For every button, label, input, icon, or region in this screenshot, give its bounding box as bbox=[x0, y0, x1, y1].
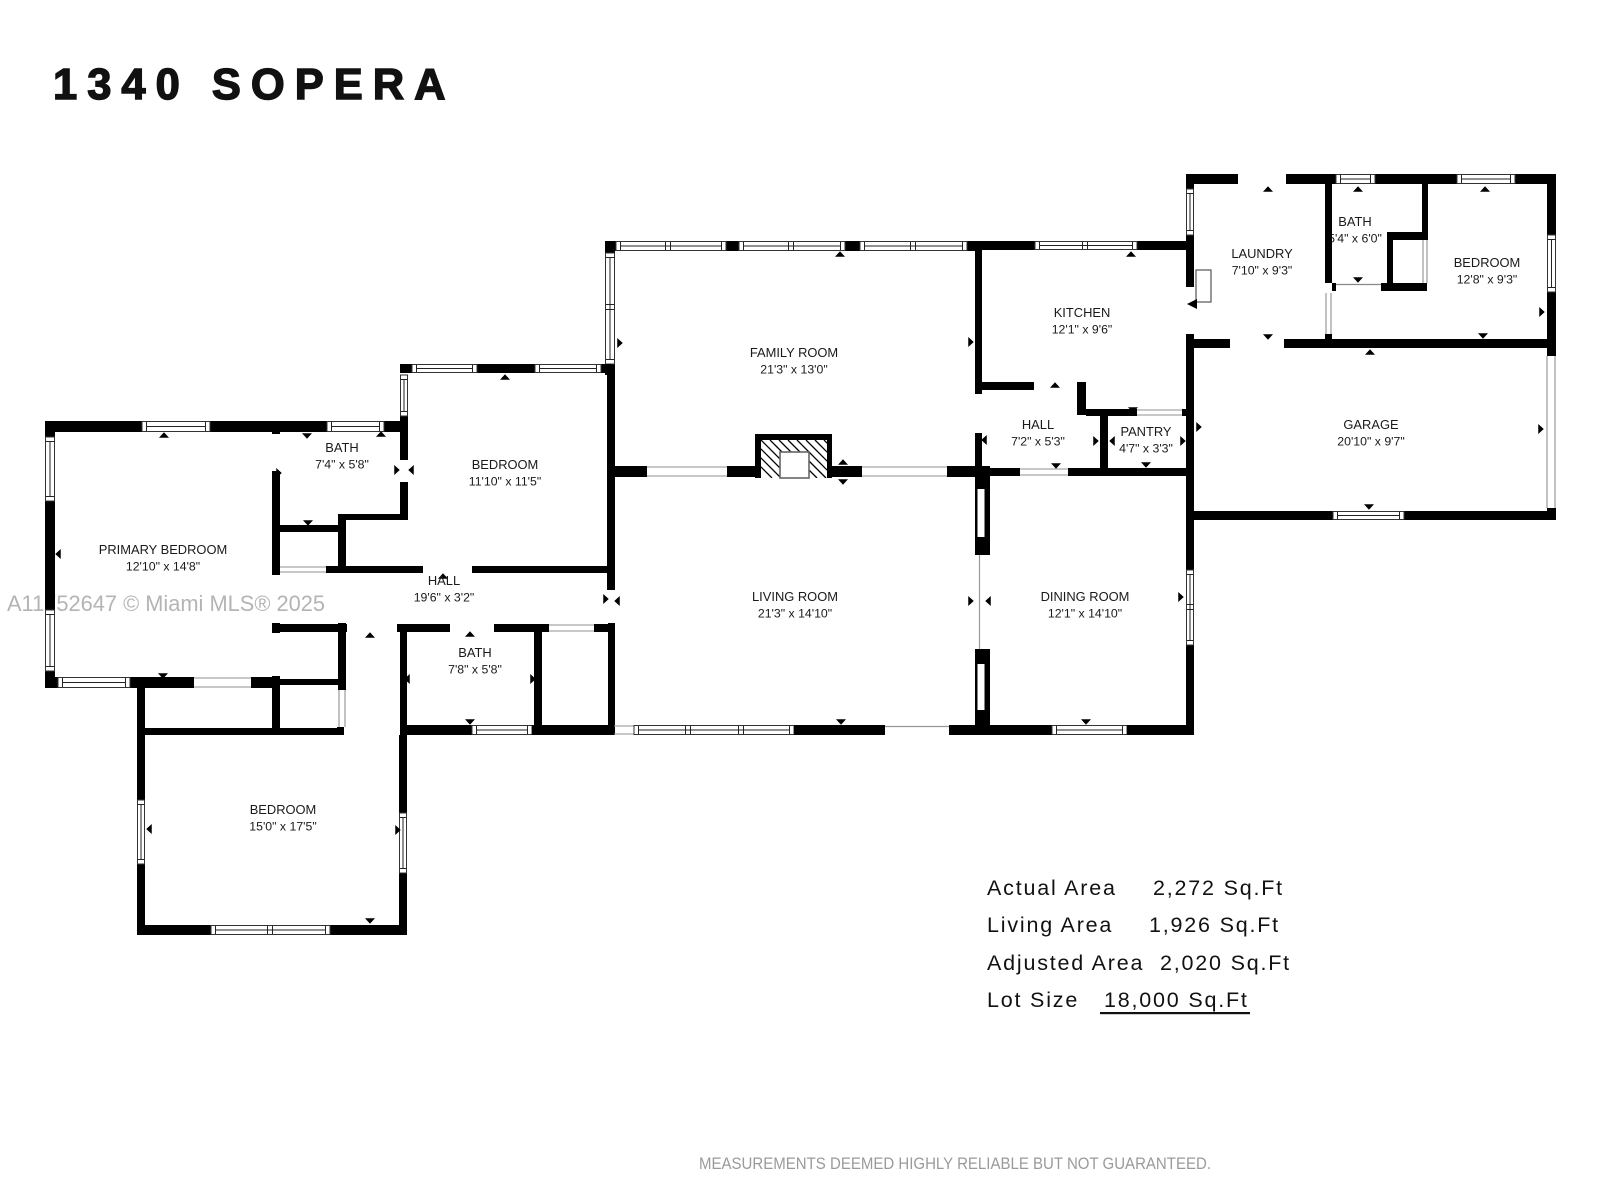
svg-text:2,272 Sq.Ft: 2,272 Sq.Ft bbox=[1153, 876, 1284, 900]
svg-text:12'8" x 9'3": 12'8" x 9'3" bbox=[1457, 273, 1518, 287]
svg-text:4'7" x 3'3": 4'7" x 3'3" bbox=[1119, 442, 1173, 456]
svg-text:12'1" x 14'10": 12'1" x 14'10" bbox=[1048, 607, 1122, 621]
svg-text:19'6" x 3'2": 19'6" x 3'2" bbox=[414, 591, 475, 605]
svg-text:7'2" x 5'3": 7'2" x 5'3" bbox=[1011, 435, 1065, 449]
svg-text:7'10" x 9'3": 7'10" x 9'3" bbox=[1232, 264, 1293, 278]
svg-text:LIVING ROOM: LIVING ROOM bbox=[752, 589, 838, 604]
svg-text:Actual Area: Actual Area bbox=[987, 876, 1117, 900]
svg-text:PANTRY: PANTRY bbox=[1120, 424, 1171, 439]
svg-text:15'0" x 17'5": 15'0" x 17'5" bbox=[249, 820, 316, 834]
svg-text:5'4" x 6'0": 5'4" x 6'0" bbox=[1328, 232, 1382, 246]
svg-text:20'10" x 9'7": 20'10" x 9'7" bbox=[1337, 435, 1404, 449]
svg-text:21'3" x 13'0": 21'3" x 13'0" bbox=[760, 363, 827, 377]
svg-text:BATH: BATH bbox=[325, 440, 358, 455]
svg-text:Lot Size: Lot Size bbox=[987, 988, 1079, 1012]
svg-text:BEDROOM: BEDROOM bbox=[472, 457, 539, 472]
svg-text:LAUNDRY: LAUNDRY bbox=[1231, 246, 1293, 261]
svg-text:7'8" x 5'8": 7'8" x 5'8" bbox=[448, 663, 502, 677]
svg-text:12'10" x 14'8": 12'10" x 14'8" bbox=[126, 560, 200, 574]
svg-text:Adjusted Area: Adjusted Area bbox=[987, 951, 1144, 975]
svg-text:BATH: BATH bbox=[458, 645, 491, 660]
svg-text:KITCHEN: KITCHEN bbox=[1054, 305, 1111, 320]
svg-text:DINING ROOM: DINING ROOM bbox=[1041, 589, 1130, 604]
svg-text:FAMILY ROOM: FAMILY ROOM bbox=[750, 345, 838, 360]
svg-text:HALL: HALL bbox=[1022, 417, 1054, 432]
svg-text:21'3" x 14'10": 21'3" x 14'10" bbox=[758, 607, 832, 621]
svg-text:GARAGE: GARAGE bbox=[1343, 417, 1399, 432]
svg-text:1,926 Sq.Ft: 1,926 Sq.Ft bbox=[1149, 913, 1280, 937]
svg-text:BEDROOM: BEDROOM bbox=[250, 802, 317, 817]
svg-text:BATH: BATH bbox=[1338, 214, 1371, 229]
svg-text:1340 SOPERA: 1340 SOPERA bbox=[53, 61, 456, 109]
svg-text:Living Area: Living Area bbox=[987, 913, 1113, 937]
svg-text:BEDROOM: BEDROOM bbox=[1454, 255, 1521, 270]
svg-text:2,020 Sq.Ft: 2,020 Sq.Ft bbox=[1160, 951, 1291, 975]
svg-text:11'10" x 11'5": 11'10" x 11'5" bbox=[469, 475, 541, 489]
svg-text:12'1" x 9'6": 12'1" x 9'6" bbox=[1052, 323, 1113, 337]
svg-text:MEASUREMENTS DEEMED HIGHLY REL: MEASUREMENTS DEEMED HIGHLY RELIABLE BUT … bbox=[699, 1155, 1211, 1173]
svg-text:7'4" x 5'8": 7'4" x 5'8" bbox=[315, 458, 369, 472]
svg-text:HALL: HALL bbox=[428, 573, 460, 588]
svg-text:18,000 Sq.Ft: 18,000 Sq.Ft bbox=[1104, 988, 1249, 1012]
svg-text:PRIMARY BEDROOM: PRIMARY BEDROOM bbox=[99, 542, 227, 557]
